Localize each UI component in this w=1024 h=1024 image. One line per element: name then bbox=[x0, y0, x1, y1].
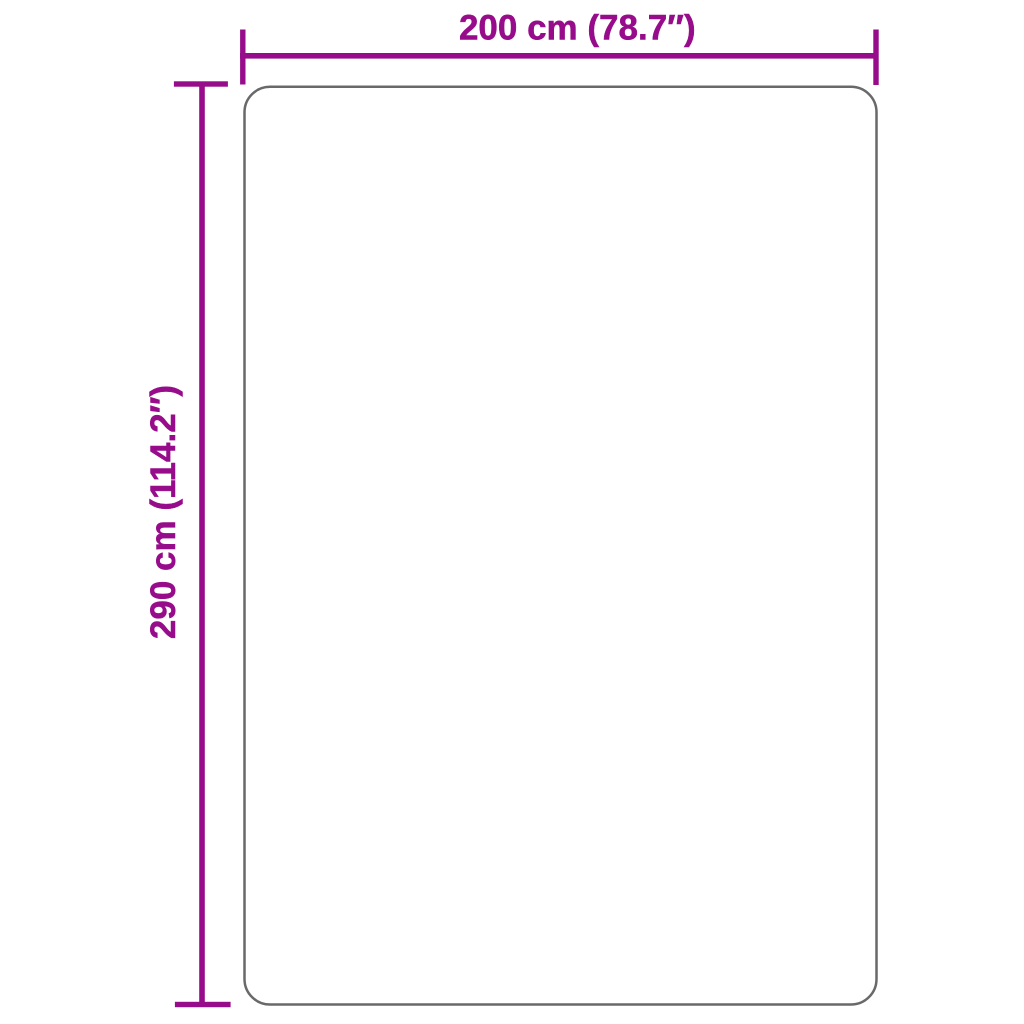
svg-text:290 cm (114.2″): 290 cm (114.2″) bbox=[144, 385, 183, 639]
svg-text:200 cm (78.7″): 200 cm (78.7″) bbox=[459, 9, 696, 48]
